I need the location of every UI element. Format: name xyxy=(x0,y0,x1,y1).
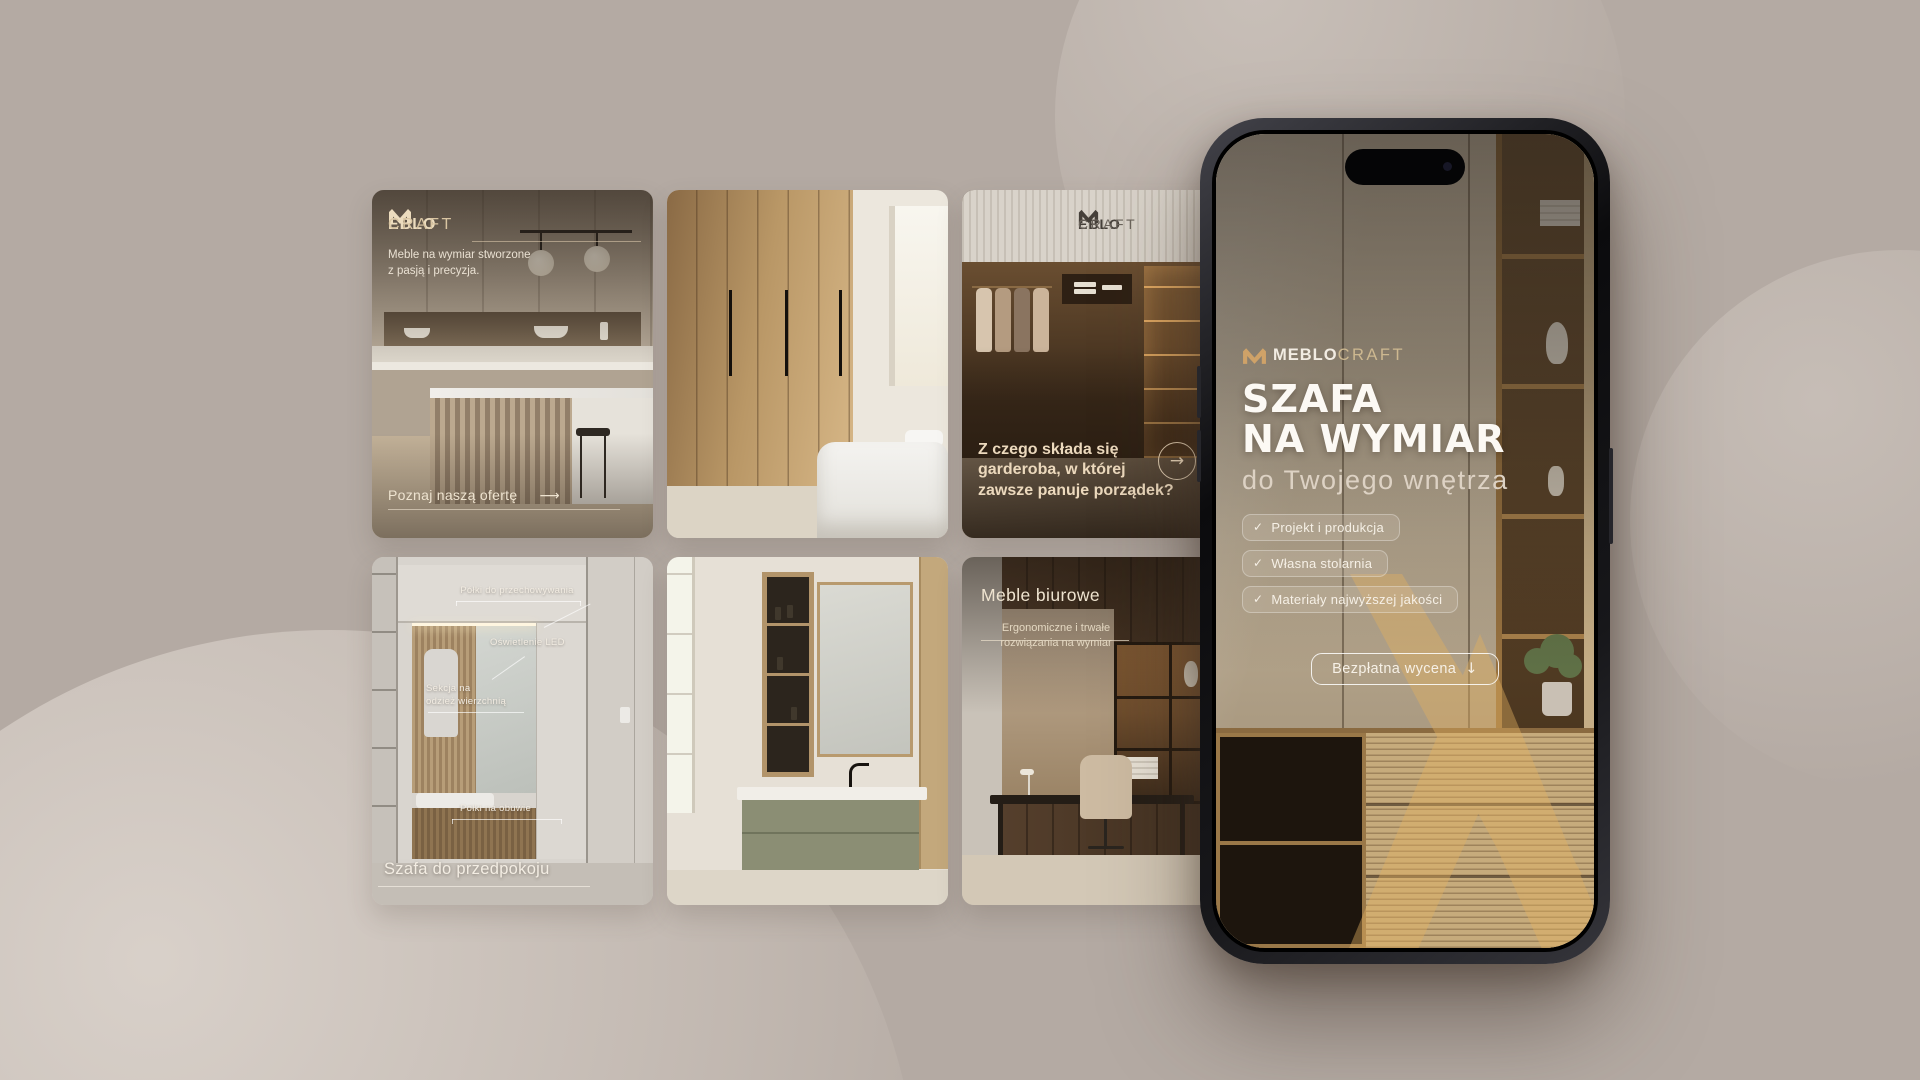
bed-duvet xyxy=(817,442,948,538)
free-quote-label: Bezpłatna wycena xyxy=(1332,661,1456,677)
post-title: Szafa do przedpokoju xyxy=(384,860,550,879)
wardrobe-handle xyxy=(785,290,788,376)
annotation-section: Sekcja na odzież wierzchnią xyxy=(426,683,506,709)
window xyxy=(667,557,695,813)
brand-mark-icon xyxy=(1242,346,1267,365)
mirror xyxy=(476,626,536,793)
design-showcase: EBLOCRAFT Meble na wymiar stworzone z pa… xyxy=(0,0,1920,1080)
post-title: Meble biurowe xyxy=(981,585,1100,606)
volume-up-button xyxy=(1197,366,1201,418)
check-icon: ✓ xyxy=(1253,592,1263,606)
wardrobe-handle xyxy=(729,290,732,376)
divider-line xyxy=(378,886,590,887)
open-shelf-column xyxy=(762,572,814,777)
shoe-drawer xyxy=(412,808,536,859)
offer-link-label: Poznaj naszą ofertę xyxy=(388,487,517,503)
subheadline: do Twojego wnętrza xyxy=(1242,465,1568,496)
annotation-shelves: Półki do przechowywania xyxy=(442,585,592,596)
post-bedroom-wardrobe xyxy=(667,190,948,538)
background-orb xyxy=(1630,250,1920,790)
dynamic-island xyxy=(1345,149,1465,185)
offer-link[interactable]: Poznaj naszą ofertę⟶ xyxy=(388,487,560,504)
intercom-panel xyxy=(620,707,630,723)
post-kitchen: EBLOCRAFT Meble na wymiar stworzone z pa… xyxy=(372,190,653,538)
phone-mockup: MEBLOCRAFT SZAFA NA WYMIAR do Twojego wn… xyxy=(1200,118,1610,964)
post-hallway-wardrobe: Półki do przechowywania Oświetlenie LED … xyxy=(372,557,653,905)
green-vanity xyxy=(742,800,919,870)
arrow-right-icon: ⟶ xyxy=(539,488,559,504)
annotation-bracket xyxy=(452,819,562,820)
feature-pill: ✓ Własna stolarnia xyxy=(1242,550,1388,577)
annotation-bracket xyxy=(456,601,581,602)
feature-list: ✓ Projekt i produkcja ✓ Własna stolarnia… xyxy=(1242,514,1568,613)
wardrobe-handle xyxy=(839,290,842,376)
annotation-shoes: Półki na obuwie xyxy=(460,803,531,814)
phone-screen: MEBLOCRAFT SZAFA NA WYMIAR do Twojego wn… xyxy=(1216,134,1594,948)
power-button xyxy=(1609,448,1613,544)
divider-line xyxy=(472,241,641,242)
annotation-led: Oświetlenie LED xyxy=(490,637,565,648)
side-cabinet xyxy=(398,623,412,859)
brand-logo-light: CRAFT xyxy=(1078,216,1137,232)
brand-logo: MEBLOCRAFT xyxy=(1242,346,1568,365)
countertop xyxy=(737,787,927,800)
brand-logo-bold: MEBLO xyxy=(1273,346,1338,364)
led-strip xyxy=(412,623,536,626)
wood-panel xyxy=(919,557,948,869)
post-caption: Z czego składa się garderoba, w której z… xyxy=(978,440,1174,501)
arrow-down-icon: ↓ xyxy=(1465,661,1478,677)
phone-content: MEBLOCRAFT SZAFA NA WYMIAR do Twojego wn… xyxy=(1242,346,1568,685)
brand-logo-light: CRAFT xyxy=(388,216,454,234)
floor xyxy=(667,870,948,905)
feature-label: Własna stolarnia xyxy=(1271,556,1372,571)
volume-down-button xyxy=(1197,430,1201,482)
glass-door xyxy=(372,557,398,863)
black-faucet xyxy=(849,763,869,787)
window xyxy=(889,206,948,386)
arrow-circle-button[interactable]: → xyxy=(1158,442,1196,480)
feature-pill: ✓ Projekt i produkcja xyxy=(1242,514,1400,541)
annotation-line xyxy=(428,712,524,713)
post-subtitle: Ergonomiczne i trwałe rozwiązania na wym… xyxy=(976,621,1136,652)
door-frame-line xyxy=(634,557,635,869)
feature-label: Projekt i produkcja xyxy=(1271,520,1384,535)
mirror xyxy=(817,582,913,757)
feature-pill: ✓ Materiały najwyższej jakości xyxy=(1242,586,1458,613)
check-icon: ✓ xyxy=(1253,520,1263,534)
camera-icon xyxy=(1443,162,1452,171)
arrow-right-icon: → xyxy=(1170,451,1184,471)
divider-line xyxy=(388,509,620,510)
brand-logo-light: CRAFT xyxy=(1338,346,1406,364)
check-icon: ✓ xyxy=(1253,556,1263,570)
tagline: Meble na wymiar stworzone z pasją i prec… xyxy=(388,248,531,279)
free-quote-button[interactable]: Bezpłatna wycena ↓ xyxy=(1311,653,1499,685)
bottom-shade-overlay xyxy=(372,190,653,538)
post-bathroom xyxy=(667,557,948,905)
headline: SZAFA NA WYMIAR xyxy=(1242,379,1568,460)
feature-label: Materiały najwyższej jakości xyxy=(1271,592,1442,607)
